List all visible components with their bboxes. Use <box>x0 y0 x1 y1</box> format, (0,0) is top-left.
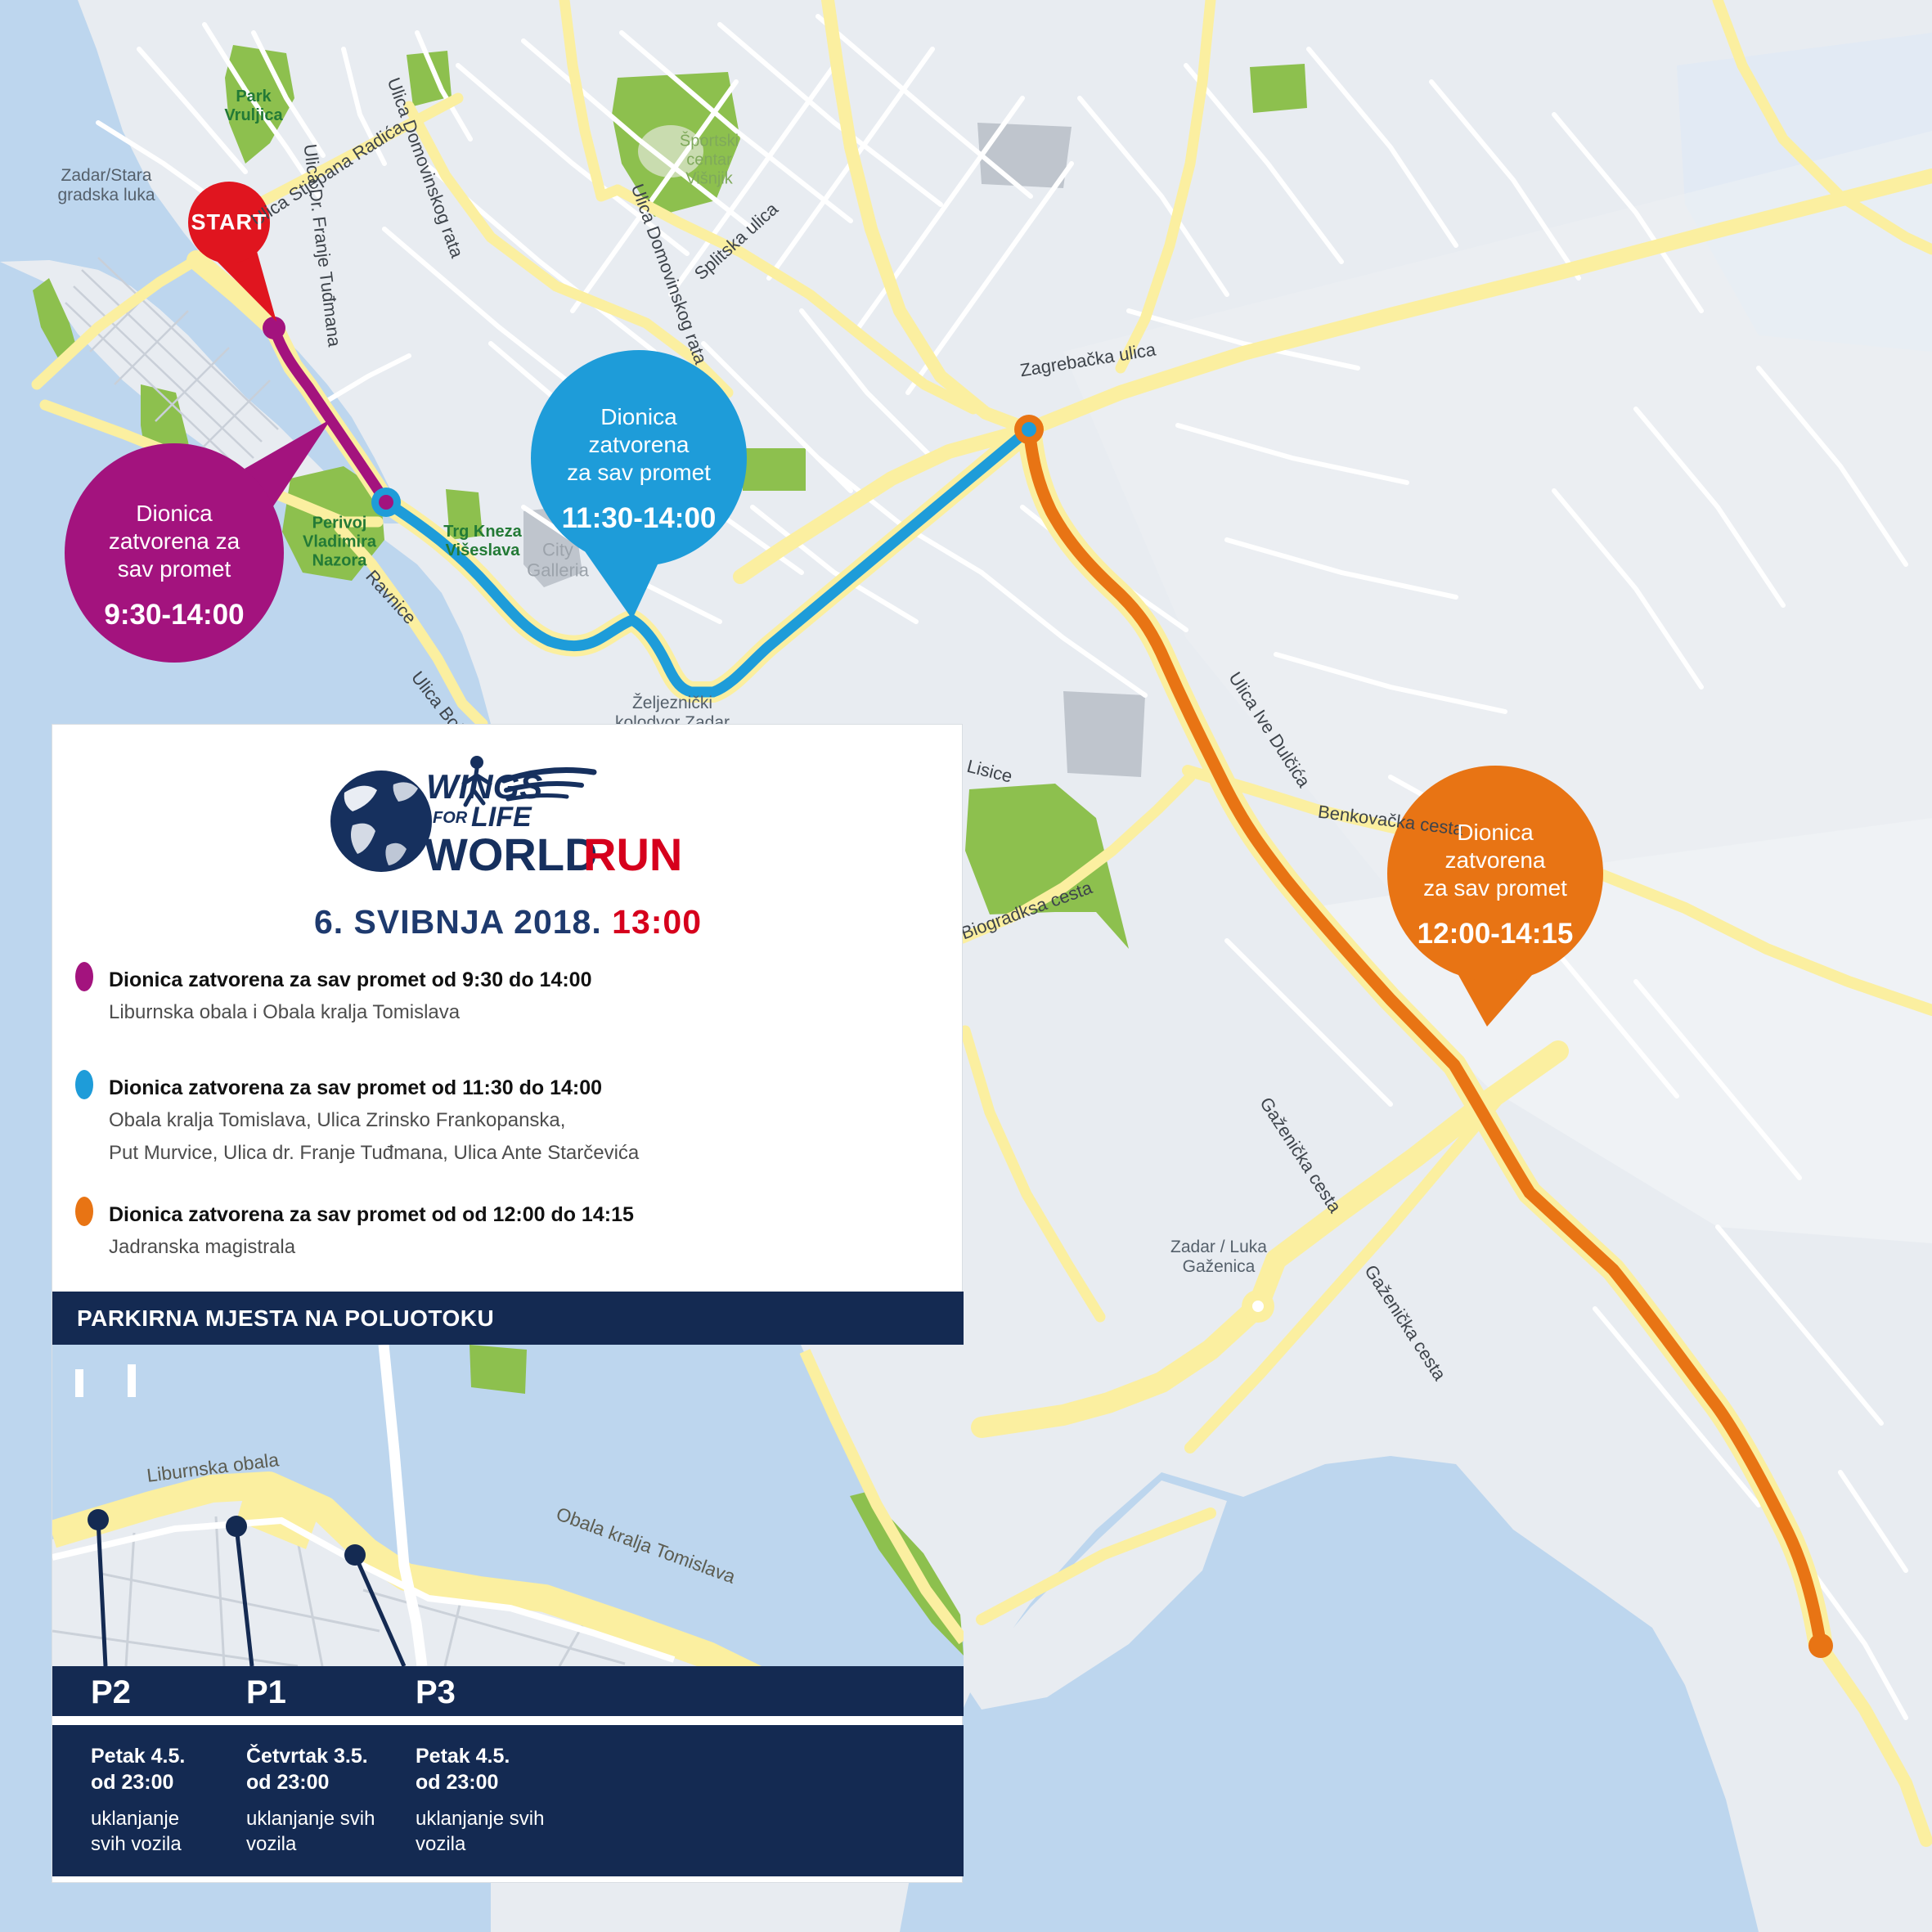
magenta-bubble-text: Dionica zatvorena za sav promet 9:30-14:… <box>104 500 244 629</box>
route-junction-dot-west <box>371 487 401 517</box>
globe-icon <box>330 771 432 872</box>
blue-dot-icon <box>75 1070 93 1099</box>
svg-text:FOR: FOR <box>433 809 468 827</box>
legend-item-magenta: Dionica zatvorena za sav promet od 9:30 … <box>109 964 935 1029</box>
parking-minimap <box>52 1345 964 1666</box>
parking-detail-p1: Četvrtak 3.5. od 23:00 uklanjanje svih v… <box>246 1743 402 1857</box>
spot-p3: P3 <box>416 1666 456 1719</box>
blue-bubble-text: Dionica zatvorena za sav promet 11:30-14… <box>562 403 717 532</box>
svg-text:RUN: RUN <box>583 829 682 880</box>
parking-detail-p3: Petak 4.5. od 23:00 uklanjanje svih vozi… <box>416 1743 571 1857</box>
svg-text:WINGS: WINGS <box>426 767 542 806</box>
start-balloon-label: START <box>191 210 267 236</box>
spot-p1: P1 <box>246 1666 286 1719</box>
spot-p2: P2 <box>91 1666 131 1719</box>
parking-spot-bar: P2 P1 P3 <box>52 1666 964 1716</box>
parking-section-header: PARKIRNA MJESTA NA POLUOTOKU <box>52 1292 964 1345</box>
start-dot <box>263 317 285 339</box>
orange-dot-icon <box>75 1197 93 1226</box>
svg-text:WORLD: WORLD <box>425 829 598 880</box>
route-end-dot <box>1808 1633 1833 1658</box>
legend-item-orange: Dionica zatvorena za sav promet od od 12… <box>109 1198 935 1264</box>
info-panel: WINGS FOR LIFE WORLD RUN 6. SVIBNJA 2018… <box>52 724 963 1883</box>
orange-bubble-text: Dionica zatvorena za sav promet 12:00-14… <box>1418 819 1574 948</box>
route-closure-map-poster: Zadar/Stara gradska luka Park Vruljica U… <box>0 0 1932 1932</box>
route-junction-dot-east <box>1014 415 1044 444</box>
event-date: 6. SVIBNJA 2018. 13:00 <box>52 903 964 941</box>
parking-detail-p2: Petak 4.5. od 23:00 uklanjanje svih vozi… <box>91 1743 238 1857</box>
wings-for-life-logo: WINGS FOR LIFE WORLD RUN <box>52 748 964 899</box>
parking-details: Petak 4.5. od 23:00 uklanjanje svih vozi… <box>52 1725 964 1876</box>
legend-item-blue: Dionica zatvorena za sav promet od 11:30… <box>109 1072 935 1170</box>
magenta-dot-icon <box>75 962 93 991</box>
